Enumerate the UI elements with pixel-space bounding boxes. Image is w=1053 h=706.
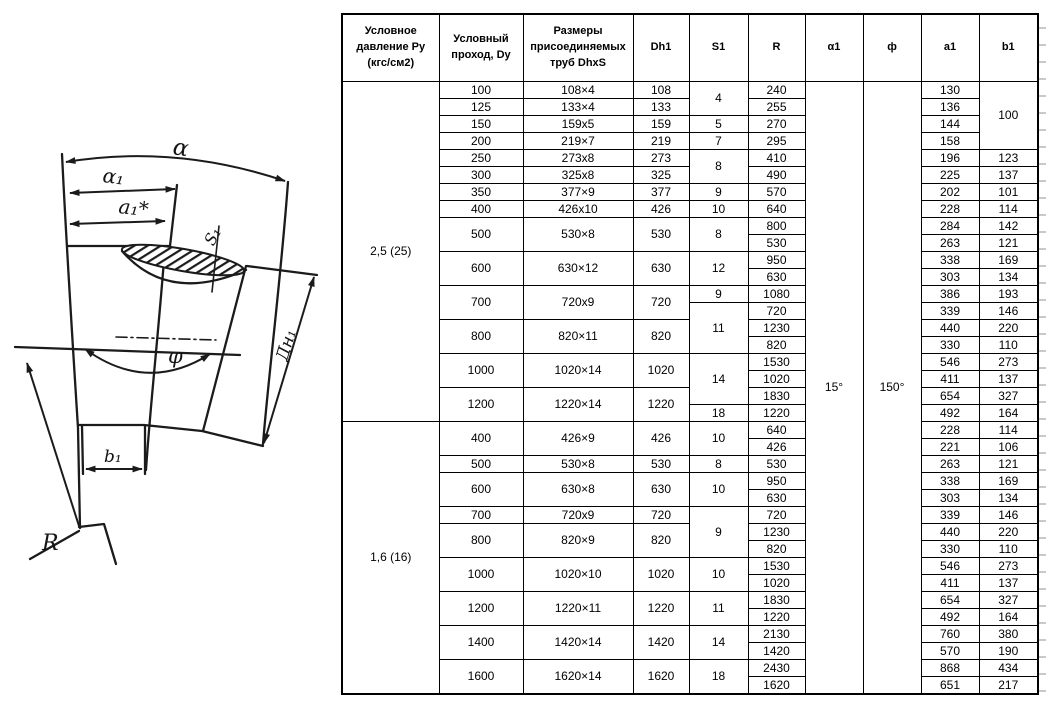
table-cell: 10 bbox=[689, 201, 748, 218]
table-header-row: Условное давление Ру (кгс/см2)Условный п… bbox=[342, 14, 1038, 82]
table-cell: 142 bbox=[979, 218, 1038, 235]
table-cell: 1220×11 bbox=[523, 592, 633, 626]
table-cell: 5 bbox=[689, 116, 748, 133]
table-cell: 108 bbox=[633, 82, 689, 99]
table-cell: 1400 bbox=[439, 626, 523, 660]
table-cell: 10 bbox=[689, 558, 748, 592]
table-cell: 1080 bbox=[748, 286, 805, 303]
table-row: 1,6 (16)400426×942610640228114 bbox=[342, 422, 1038, 439]
table-cell: 100 bbox=[439, 82, 523, 99]
label-s1: S₁ bbox=[200, 224, 225, 248]
table-cell: 380 bbox=[979, 626, 1038, 643]
a1star-dimension bbox=[70, 221, 165, 224]
table-cell: 630 bbox=[748, 269, 805, 286]
table-cell: 121 bbox=[979, 235, 1038, 252]
table-cell: 240 bbox=[748, 82, 805, 99]
alpha1-dimension bbox=[70, 189, 175, 193]
table-cell: 720x9 bbox=[523, 286, 633, 320]
dimensions-table: Условное давление Ру (кгс/см2)Условный п… bbox=[341, 13, 1039, 695]
table-cell: 164 bbox=[979, 405, 1038, 422]
table-cell: 434 bbox=[979, 660, 1038, 677]
table-cell: 640 bbox=[748, 422, 805, 439]
table-cell: 800 bbox=[439, 320, 523, 354]
table-cell: 570 bbox=[921, 643, 979, 660]
table-cell: 1220 bbox=[748, 609, 805, 626]
table-cell: 8 bbox=[689, 456, 748, 473]
column-header: a1 bbox=[921, 14, 979, 82]
table-cell: 325 bbox=[633, 167, 689, 184]
column-header: Условный проход, Dy bbox=[439, 14, 523, 82]
table-cell: 1020 bbox=[748, 575, 805, 592]
table-cell: 1620×14 bbox=[523, 660, 633, 695]
table-cell: 270 bbox=[748, 116, 805, 133]
table-cell: 159 bbox=[633, 116, 689, 133]
column-header: S1 bbox=[689, 14, 748, 82]
table-cell: 500 bbox=[439, 456, 523, 473]
table-row: 250273x82738410196123 bbox=[342, 150, 1038, 167]
table-cell: 1830 bbox=[748, 592, 805, 609]
table-cell: 9 bbox=[689, 184, 748, 201]
table-cell: 492 bbox=[921, 609, 979, 626]
table-cell: 158 bbox=[921, 133, 979, 150]
table-cell: 220 bbox=[979, 320, 1038, 337]
table-cell: 720 bbox=[748, 507, 805, 524]
table-row: 10001020×141020141530546273 bbox=[342, 354, 1038, 371]
label-radius: R bbox=[41, 531, 59, 556]
table-cell: 121 bbox=[979, 456, 1038, 473]
table-cell: 1000 bbox=[439, 558, 523, 592]
table-cell: 1020 bbox=[633, 558, 689, 592]
table-cell: 114 bbox=[979, 201, 1038, 218]
table-cell: 146 bbox=[979, 507, 1038, 524]
table-cell: 137 bbox=[979, 167, 1038, 184]
table-cell: 1020×10 bbox=[523, 558, 633, 592]
table-cell: 130 bbox=[921, 82, 979, 99]
table-cell: 273 bbox=[979, 558, 1038, 575]
table-cell: 137 bbox=[979, 371, 1038, 388]
table-cell: 8 bbox=[689, 218, 748, 252]
column-header: R bbox=[748, 14, 805, 82]
table-cell: 570 bbox=[748, 184, 805, 201]
table-row: 350377×93779570202101 bbox=[342, 184, 1038, 201]
table-cell: 490 bbox=[748, 167, 805, 184]
table-cell: 426 bbox=[748, 439, 805, 456]
table-cell: 250 bbox=[439, 150, 523, 167]
table-cell: 426x10 bbox=[523, 201, 633, 218]
table-cell: 1600 bbox=[439, 660, 523, 695]
label-alpha1: α₁ bbox=[101, 163, 125, 189]
table-cell: 426×9 bbox=[523, 422, 633, 456]
table-cell: 1620 bbox=[748, 677, 805, 695]
table-cell: 530 bbox=[748, 235, 805, 252]
table-cell: 133×4 bbox=[523, 99, 633, 116]
table-cell: 820 bbox=[633, 524, 689, 558]
table-cell: 100 bbox=[979, 82, 1038, 150]
table-cell: 1220 bbox=[633, 388, 689, 422]
table-cell: 110 bbox=[979, 541, 1038, 558]
column-header: ф bbox=[863, 14, 921, 82]
sector-outline bbox=[15, 154, 317, 564]
table-cell: 18 bbox=[689, 405, 748, 422]
table-cell: 330 bbox=[921, 541, 979, 558]
table-row: 12001220×111220111830654327 bbox=[342, 592, 1038, 609]
table-cell: 9 bbox=[689, 286, 748, 303]
table-cell: 1530 bbox=[748, 354, 805, 371]
table-cell: 377×9 bbox=[523, 184, 633, 201]
table-cell: 164 bbox=[979, 609, 1038, 626]
table-cell: 630 bbox=[633, 252, 689, 286]
table-cell: 1420×14 bbox=[523, 626, 633, 660]
table-row: 10001020×101020101530546273 bbox=[342, 558, 1038, 575]
table-cell: 720 bbox=[633, 507, 689, 524]
table-row: 150159x51595270144 bbox=[342, 116, 1038, 133]
table-row: 700720x97209720339146 bbox=[342, 507, 1038, 524]
table-cell: 110 bbox=[979, 337, 1038, 354]
table-cell: 169 bbox=[979, 252, 1038, 269]
table-cell: 1020 bbox=[633, 354, 689, 388]
table-cell: 101 bbox=[979, 184, 1038, 201]
table-cell: 760 bbox=[921, 626, 979, 643]
table-cell: 440 bbox=[921, 320, 979, 337]
column-header: Условное давление Ру (кгс/см2) bbox=[342, 14, 439, 82]
table-cell: 1220×14 bbox=[523, 388, 633, 422]
table-row: 200219×72197295158 bbox=[342, 133, 1038, 150]
table-cell: 228 bbox=[921, 422, 979, 439]
table-cell: 950 bbox=[748, 473, 805, 490]
table-cell: 868 bbox=[921, 660, 979, 677]
table-cell: 133 bbox=[633, 99, 689, 116]
table-cell: 630 bbox=[748, 490, 805, 507]
table-cell: 11 bbox=[689, 592, 748, 626]
table-cell: 150 bbox=[439, 116, 523, 133]
table-cell: 325x8 bbox=[523, 167, 633, 184]
table-cell: 820×9 bbox=[523, 524, 633, 558]
table-cell: 273x8 bbox=[523, 150, 633, 167]
table-cell: 410 bbox=[748, 150, 805, 167]
table-cell: 492 bbox=[921, 405, 979, 422]
table-row: 600630×863010950338169 bbox=[342, 473, 1038, 490]
table-cell: 546 bbox=[921, 558, 979, 575]
table-row: 16001620×141620182430868434 bbox=[342, 660, 1038, 677]
table-cell: 820 bbox=[748, 541, 805, 558]
label-phi: φ bbox=[168, 344, 183, 368]
table-cell: 125 bbox=[439, 99, 523, 116]
table-cell: 339 bbox=[921, 303, 979, 320]
table-row: 2,5 (25)100108×4108424015°150°130100 bbox=[342, 82, 1038, 99]
table-cell: 200 bbox=[439, 133, 523, 150]
table-cell: 700 bbox=[439, 507, 523, 524]
table-cell: 426 bbox=[633, 201, 689, 218]
table-cell: 15° bbox=[805, 82, 863, 695]
table-cell: 159x5 bbox=[523, 116, 633, 133]
table-cell: 600 bbox=[439, 252, 523, 286]
table-cell: 600 bbox=[439, 473, 523, 507]
table-cell: 820 bbox=[633, 320, 689, 354]
table-cell: 440 bbox=[921, 524, 979, 541]
table-cell: 1530 bbox=[748, 558, 805, 575]
table-cell: 400 bbox=[439, 201, 523, 218]
table-cell: 1220 bbox=[633, 592, 689, 626]
table-cell: 530 bbox=[748, 456, 805, 473]
table-cell: 219 bbox=[633, 133, 689, 150]
table-cell: 651 bbox=[921, 677, 979, 695]
table-cell: 546 bbox=[921, 354, 979, 371]
dimension-lines bbox=[27, 156, 314, 526]
table-cell: 221 bbox=[921, 439, 979, 456]
table-cell: 144 bbox=[921, 116, 979, 133]
table-cell: 640 bbox=[748, 201, 805, 218]
table-cell: 1620 bbox=[633, 660, 689, 695]
table-cell: 400 bbox=[439, 422, 523, 456]
table-cell: 654 bbox=[921, 388, 979, 405]
table-cell: 217 bbox=[979, 677, 1038, 695]
table-cell: 426 bbox=[633, 422, 689, 456]
table-cell: 10 bbox=[689, 422, 748, 456]
table-cell: 530×8 bbox=[523, 456, 633, 473]
table-cell: 123 bbox=[979, 150, 1038, 167]
table-cell: 1230 bbox=[748, 524, 805, 541]
table-cell: 2130 bbox=[748, 626, 805, 643]
radius-leader bbox=[27, 363, 79, 526]
table-cell: 630×12 bbox=[523, 252, 633, 286]
table-cell: 202 bbox=[921, 184, 979, 201]
table-row: 500530×85308530263121 bbox=[342, 456, 1038, 473]
table-cell: 338 bbox=[921, 473, 979, 490]
column-header: Dh1 bbox=[633, 14, 689, 82]
table-cell: 14 bbox=[689, 626, 748, 660]
table-cell: 263 bbox=[921, 456, 979, 473]
table-row: 400426x1042610640228114 bbox=[342, 201, 1038, 218]
table-cell: 327 bbox=[979, 592, 1038, 609]
table-cell: 263 bbox=[921, 235, 979, 252]
table-cell: 196 bbox=[921, 150, 979, 167]
table-cell: 377 bbox=[633, 184, 689, 201]
weld-seam-hatch bbox=[120, 238, 246, 281]
table-cell: 2430 bbox=[748, 660, 805, 677]
table-cell: 339 bbox=[921, 507, 979, 524]
column-header: α1 bbox=[805, 14, 863, 82]
table-cell: 630×8 bbox=[523, 473, 633, 507]
table-cell: 193 bbox=[979, 286, 1038, 303]
table-cell: 330 bbox=[921, 337, 979, 354]
table-cell: 255 bbox=[748, 99, 805, 116]
table-cell: 108×4 bbox=[523, 82, 633, 99]
table-cell: 530 bbox=[633, 218, 689, 252]
table-cell: 4 bbox=[689, 82, 748, 116]
table-cell: 1220 bbox=[748, 405, 805, 422]
table-cell: 8 bbox=[689, 150, 748, 184]
table-cell: 106 bbox=[979, 439, 1038, 456]
table-cell: 150° bbox=[863, 82, 921, 695]
table-cell: 530×8 bbox=[523, 218, 633, 252]
table-cell: 7 bbox=[689, 133, 748, 150]
table-cell: 136 bbox=[921, 99, 979, 116]
table-cell: 800 bbox=[439, 524, 523, 558]
table-cell: 411 bbox=[921, 371, 979, 388]
table-cell: 720x9 bbox=[523, 507, 633, 524]
table-cell: 700 bbox=[439, 286, 523, 320]
table-cell: 1200 bbox=[439, 592, 523, 626]
table-cell: 137 bbox=[979, 575, 1038, 592]
table-cell: 1230 bbox=[748, 320, 805, 337]
table-cell: 303 bbox=[921, 490, 979, 507]
label-a1star: a₁* bbox=[117, 194, 149, 221]
column-header: b1 bbox=[979, 14, 1038, 82]
table-cell: 284 bbox=[921, 218, 979, 235]
table-row: 700720x972091080386193 bbox=[342, 286, 1038, 303]
table-cell: 11 bbox=[689, 303, 748, 354]
table-cell: 2,5 (25) bbox=[342, 82, 439, 422]
table-cell: 18 bbox=[689, 660, 748, 695]
table-row: 500530×85308800284142 bbox=[342, 218, 1038, 235]
table-cell: 1420 bbox=[633, 626, 689, 660]
table-cell: 134 bbox=[979, 269, 1038, 286]
table-cell: 654 bbox=[921, 592, 979, 609]
table-cell: 720 bbox=[748, 303, 805, 320]
table-cell: 386 bbox=[921, 286, 979, 303]
table-cell: 327 bbox=[979, 388, 1038, 405]
table-cell: 1200 bbox=[439, 388, 523, 422]
table-cell: 14 bbox=[689, 354, 748, 405]
pipe-bend-sketch: α α₁ a₁* S₁ φ Дн₁ b₁ R bbox=[0, 118, 345, 600]
table-cell: 225 bbox=[921, 167, 979, 184]
table-cell: 820 bbox=[748, 337, 805, 354]
table-cell: 1420 bbox=[748, 643, 805, 660]
table-cell: 1,6 (16) bbox=[342, 422, 439, 695]
table-row: 14001420×141420142130760380 bbox=[342, 626, 1038, 643]
table-cell: 134 bbox=[979, 490, 1038, 507]
table-cell: 9 bbox=[689, 507, 748, 558]
table-cell: 1020×14 bbox=[523, 354, 633, 388]
table-cell: 273 bbox=[979, 354, 1038, 371]
table-cell: 720 bbox=[633, 286, 689, 320]
table-cell: 1020 bbox=[748, 371, 805, 388]
table-cell: 500 bbox=[439, 218, 523, 252]
table-cell: 219×7 bbox=[523, 133, 633, 150]
table-cell: 273 bbox=[633, 150, 689, 167]
table-row: 600630×1263012950338169 bbox=[342, 252, 1038, 269]
table-cell: 300 bbox=[439, 167, 523, 184]
table-cell: 800 bbox=[748, 218, 805, 235]
table-cell: 220 bbox=[979, 524, 1038, 541]
document-page: { "page": {"background": "#ffffff", "ink… bbox=[0, 0, 1053, 706]
table-cell: 146 bbox=[979, 303, 1038, 320]
table-cell: 530 bbox=[633, 456, 689, 473]
spreadsheet-gridline-stubs bbox=[1039, 12, 1046, 696]
label-b1: b₁ bbox=[104, 447, 122, 467]
table-cell: 228 bbox=[921, 201, 979, 218]
table-cell: 411 bbox=[921, 575, 979, 592]
table-cell: 820×11 bbox=[523, 320, 633, 354]
table-cell: 950 bbox=[748, 252, 805, 269]
table-cell: 12 bbox=[689, 252, 748, 286]
table-cell: 350 bbox=[439, 184, 523, 201]
column-header: Размеры присоединяемых труб DhxS bbox=[523, 14, 633, 82]
table-cell: 295 bbox=[748, 133, 805, 150]
table-body: 2,5 (25)100108×4108424015°150°1301001251… bbox=[342, 82, 1038, 695]
table-cell: 630 bbox=[633, 473, 689, 507]
table-cell: 114 bbox=[979, 422, 1038, 439]
table-cell: 190 bbox=[979, 643, 1038, 660]
table-cell: 1830 bbox=[748, 388, 805, 405]
table-cell: 10 bbox=[689, 473, 748, 507]
table-cell: 1000 bbox=[439, 354, 523, 388]
table-cell: 303 bbox=[921, 269, 979, 286]
table-cell: 169 bbox=[979, 473, 1038, 490]
table-cell: 338 bbox=[921, 252, 979, 269]
label-dn1: Дн₁ bbox=[272, 327, 301, 364]
